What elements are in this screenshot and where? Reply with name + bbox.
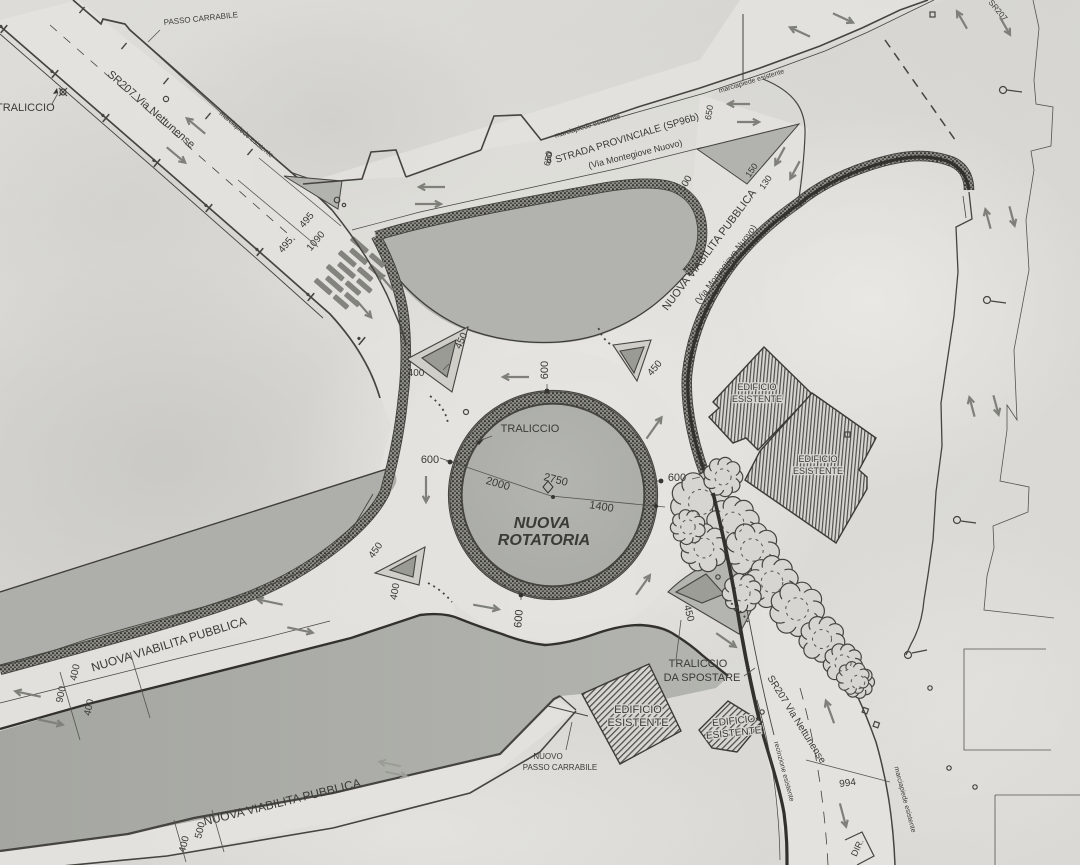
svg-text:600: 600 xyxy=(539,361,551,379)
svg-text:ESISTENTE: ESISTENTE xyxy=(607,717,668,729)
svg-text:DA SPOSTARE: DA SPOSTARE xyxy=(664,672,741,684)
svg-text:ESISTENTE: ESISTENTE xyxy=(732,394,782,404)
svg-text:600: 600 xyxy=(668,472,686,484)
svg-text:ESISTENTE: ESISTENTE xyxy=(793,466,843,476)
svg-text:PASSO CARRABILE: PASSO CARRABILE xyxy=(523,763,598,772)
svg-text:600: 600 xyxy=(512,609,526,628)
svg-text:TRALICCIO: TRALICCIO xyxy=(0,102,55,114)
svg-text:TRALICCIO: TRALICCIO xyxy=(669,658,728,670)
svg-text:TRALICCIO: TRALICCIO xyxy=(501,423,560,435)
svg-text:EDIFICIO: EDIFICIO xyxy=(798,454,837,464)
svg-text:EDIFICIO: EDIFICIO xyxy=(737,382,776,392)
svg-text:ROTATORIA: ROTATORIA xyxy=(498,532,590,549)
svg-text:EDIFICIO: EDIFICIO xyxy=(614,704,662,716)
svg-text:NUOVO: NUOVO xyxy=(533,752,562,761)
svg-text:400: 400 xyxy=(408,368,425,379)
svg-text:600: 600 xyxy=(421,454,439,466)
svg-text:NUOVA: NUOVA xyxy=(514,515,571,532)
